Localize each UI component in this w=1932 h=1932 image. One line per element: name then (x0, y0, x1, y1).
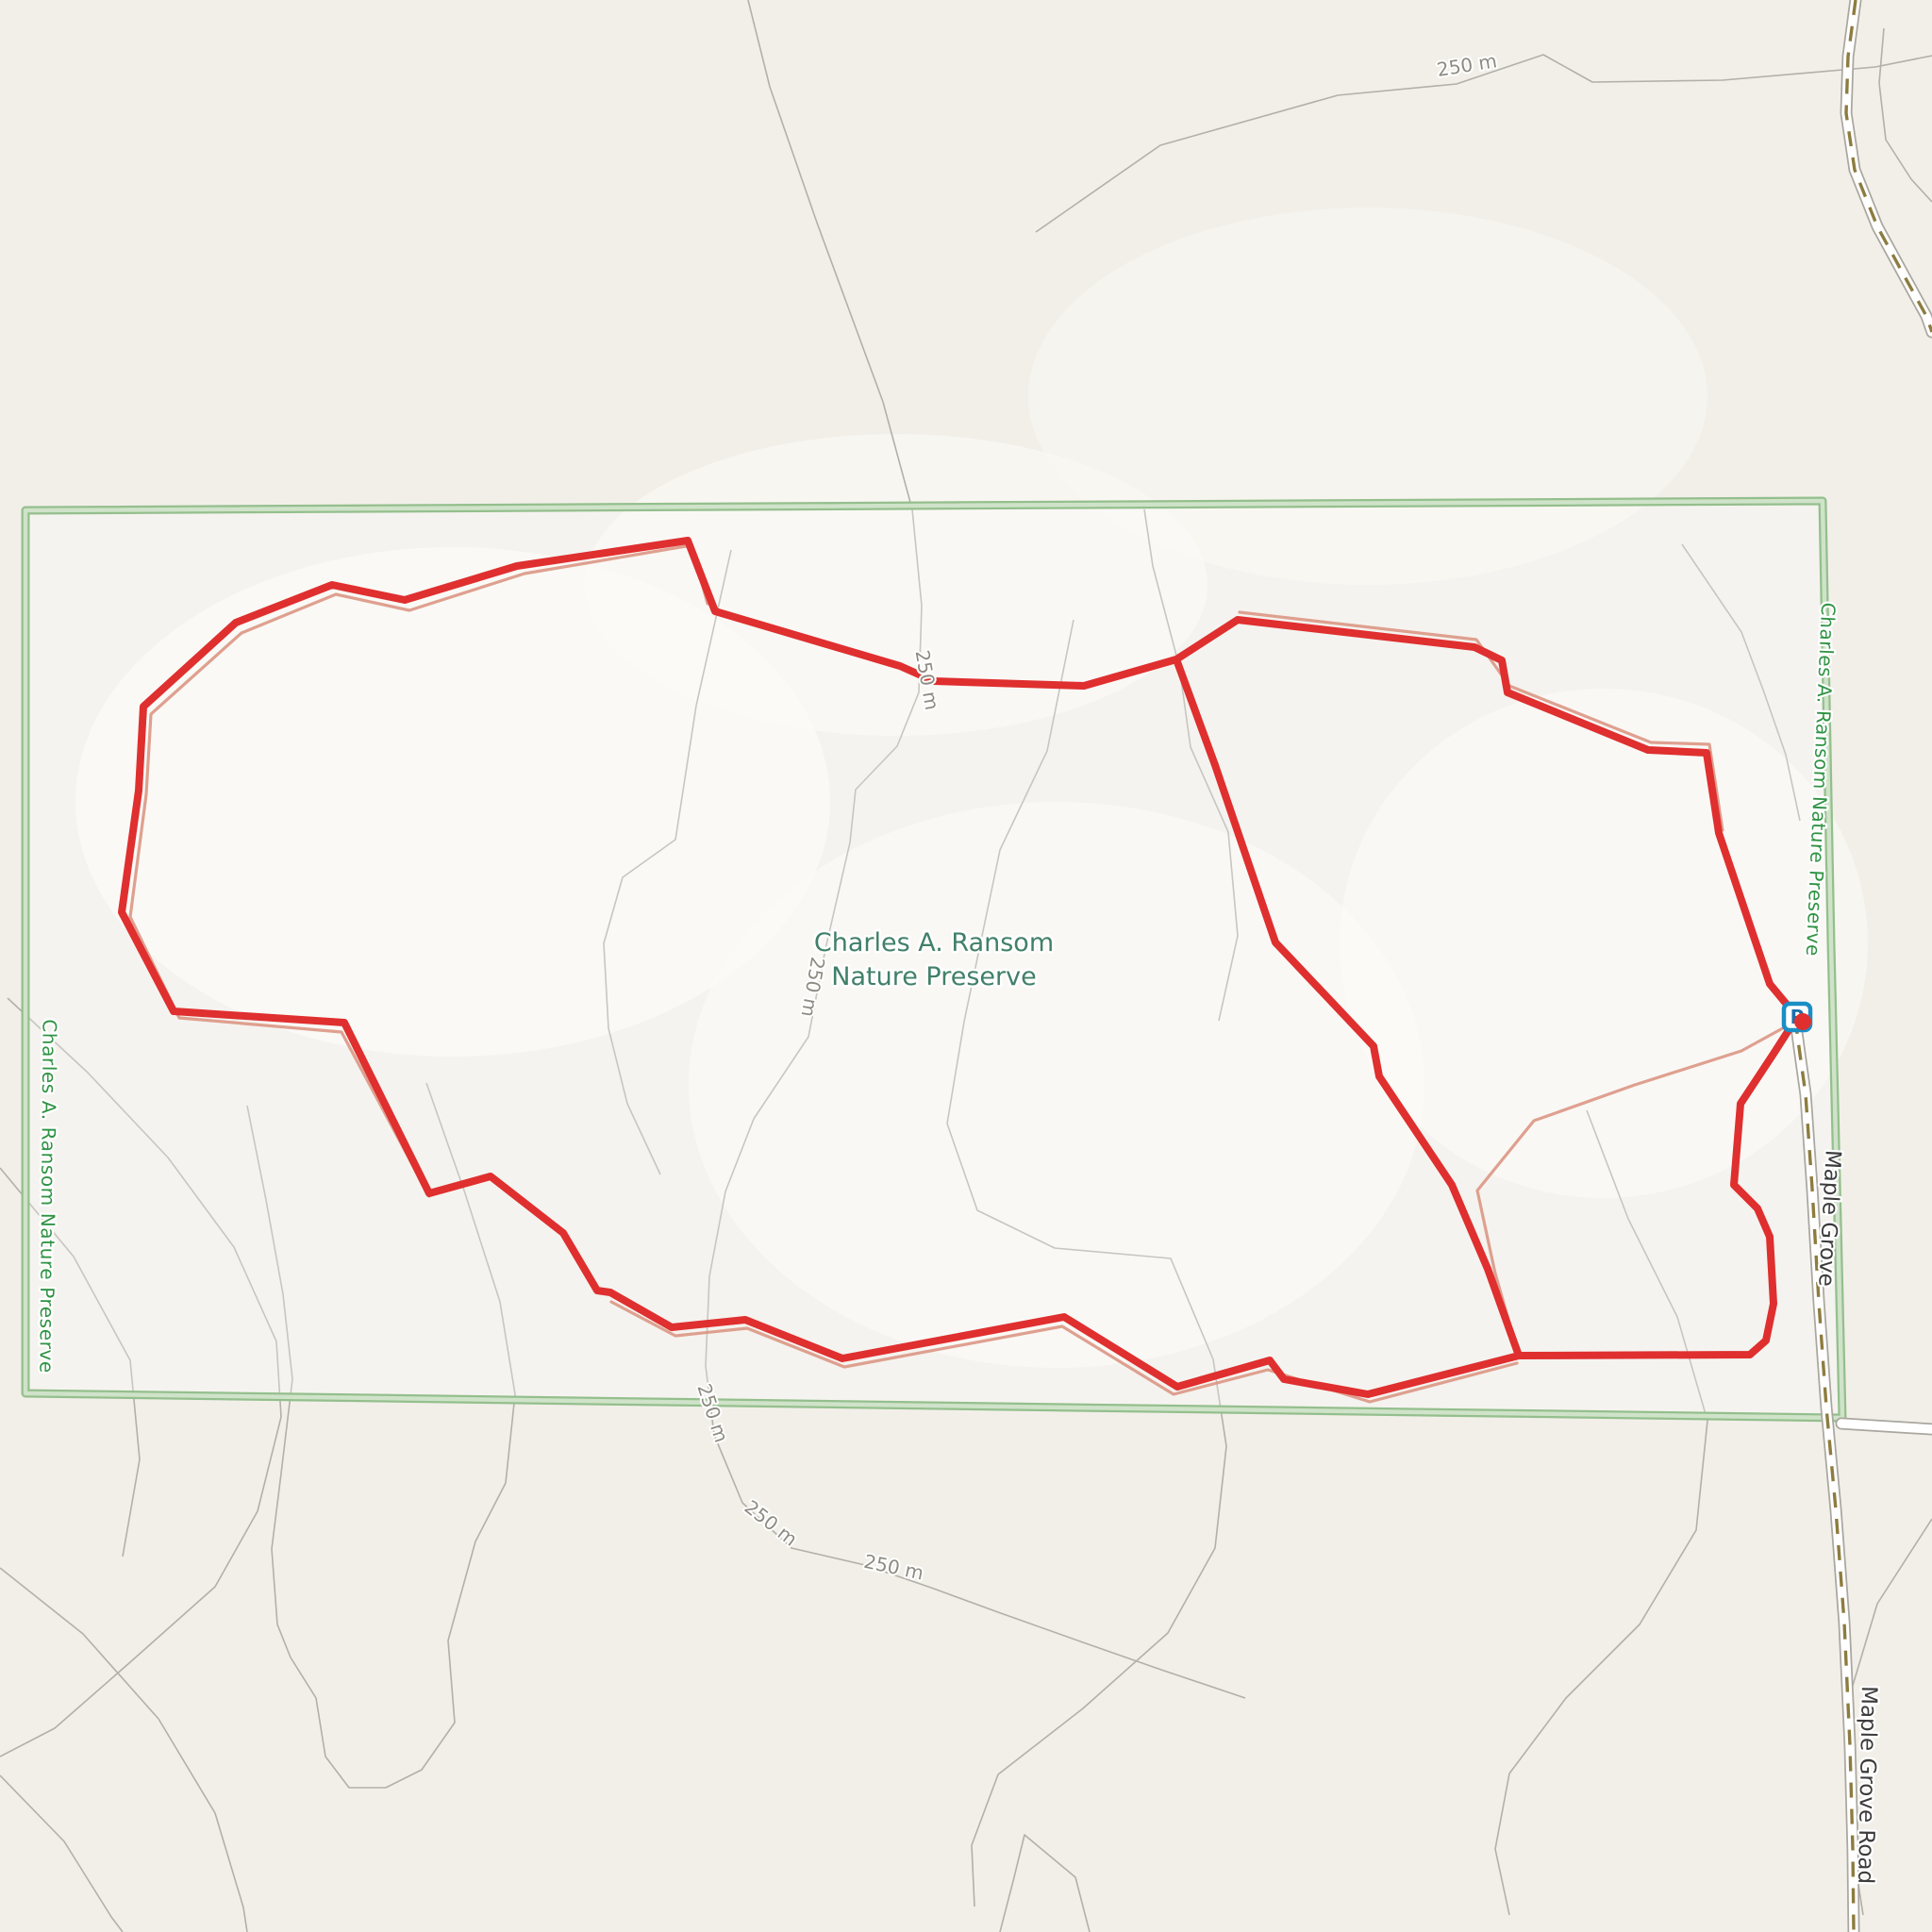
map-canvas[interactable]: PCharles A. RansomNature PreserveCharles… (0, 0, 1932, 1932)
road-label-maple-grove-road: Maple Grove Road (1853, 1686, 1881, 1884)
side-road-stub-surface (1841, 1424, 1932, 1429)
preserve-label-line1: Charles A. Ransom (814, 928, 1054, 958)
track-endpoint-dot[interactable] (1794, 1013, 1811, 1030)
preserve-area-tint (25, 501, 1842, 1418)
preserve-boundary-label-left: Charles A. Ransom Nature Preserve (35, 1019, 60, 1374)
preserve-label-line2: Nature Preserve (831, 962, 1036, 991)
topo-map[interactable]: PCharles A. RansomNature PreserveCharles… (0, 0, 1932, 1932)
